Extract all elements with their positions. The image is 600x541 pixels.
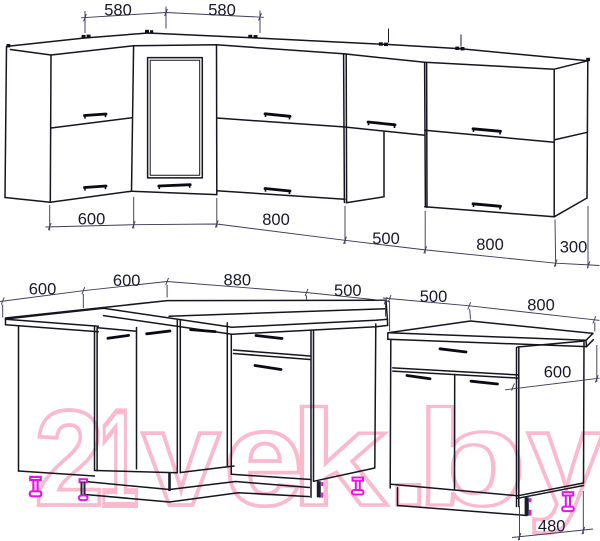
svg-text:500: 500 [372,230,400,248]
svg-text:300: 300 [560,239,588,257]
svg-text:480: 480 [538,518,566,536]
svg-text:500: 500 [334,282,362,300]
svg-text:600: 600 [29,281,57,299]
svg-text:580: 580 [208,2,236,20]
svg-text:800: 800 [476,236,504,254]
svg-text:2: 2 [34,382,104,535]
svg-text:1: 1 [99,382,138,534]
svg-text:v: v [142,383,221,534]
svg-text:800: 800 [262,211,290,229]
svg-text:600: 600 [544,364,572,382]
svg-text:k: k [290,383,388,535]
svg-text:600: 600 [113,272,141,290]
svg-text:500: 500 [420,288,448,306]
svg-text:580: 580 [104,2,132,20]
svg-text:800: 800 [527,297,555,315]
svg-text:600: 600 [78,211,106,229]
svg-text:880: 880 [224,272,252,290]
